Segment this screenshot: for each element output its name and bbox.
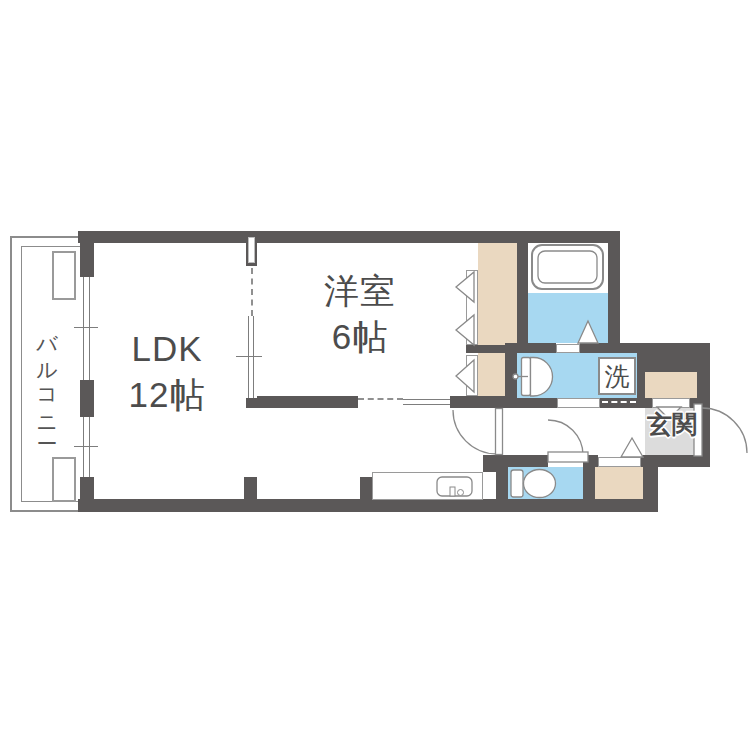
western-room-label: 洋室 6帖 [290, 268, 430, 360]
closet-door-triangle-2 [456, 315, 474, 345]
ldk-door-leaf [496, 409, 503, 455]
front-door-arc [702, 408, 747, 453]
toilet-door-leaf [548, 452, 588, 462]
toilet-bowl-icon [524, 470, 556, 498]
closet-door-triangle-3 [456, 360, 474, 392]
kitchen-drain-icon [458, 490, 464, 496]
toilet-door-arc [548, 420, 583, 455]
entrance-label: 玄関 [636, 408, 708, 441]
floor-plan: 洗 バルコニー LDK 12帖 [0, 0, 750, 750]
toilet-tank-icon [511, 470, 523, 497]
bath-door-triangle [578, 321, 598, 343]
western-room-size: 6帖 [290, 314, 430, 360]
ldk-label: LDK 12帖 [97, 326, 237, 418]
kitchen-faucet-icon [450, 487, 455, 496]
closet-door-triangle-1 [456, 272, 474, 302]
western-room-name: 洋室 [290, 268, 430, 314]
washbasin-knob-icon [513, 374, 518, 379]
balcony-label: バルコニー [33, 298, 61, 458]
ldk-name: LDK [97, 326, 237, 372]
ldk-door-arc [453, 410, 497, 454]
washbasin-bowl-icon [531, 358, 553, 397]
ldk-size: 12帖 [97, 372, 237, 418]
